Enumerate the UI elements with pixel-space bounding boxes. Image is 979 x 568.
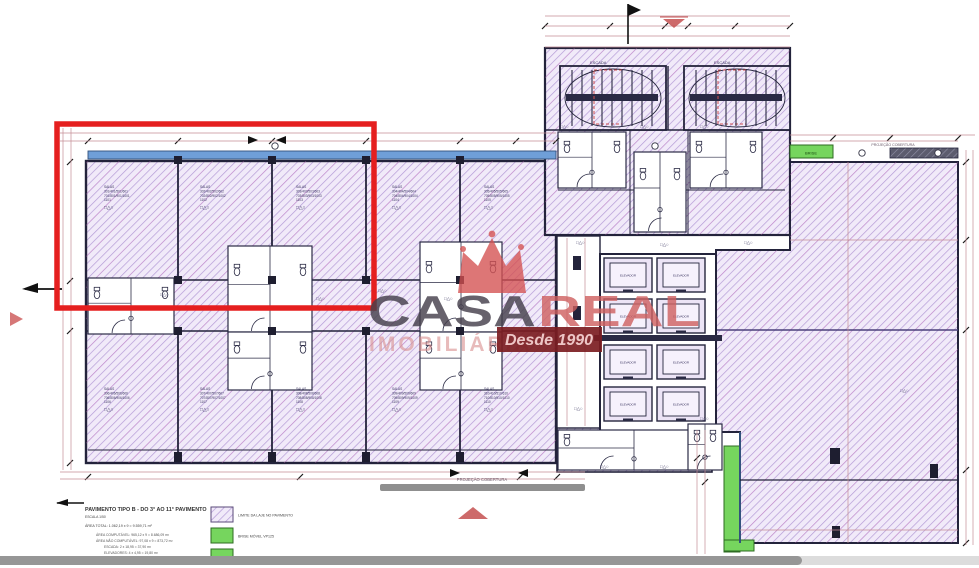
room-symbols: □△○ [104,407,114,413]
facility-symbols: □△○ [316,296,325,301]
room-label: 301/401/501/601 [104,189,128,193]
room-label: 708/808/908/1008 [296,396,322,400]
room-label: 302/402/502/602 [200,189,224,193]
room-label: 303/403/503/603 [296,189,320,193]
horizontal-scrollbar-thumb[interactable] [0,556,802,565]
room-label: 1108 [296,400,303,404]
room-label: 706/806/906/1006 [104,396,130,400]
room-label: 1106 [104,400,111,404]
stair-label: ESCADA [714,60,731,65]
stairwell-right [684,66,790,130]
room-label: 703/803/903/1003 [296,194,322,198]
watermark-badge-text: Desde 1990 [505,332,593,349]
facility-symbols: □△○ [700,124,709,129]
room-symbols: □△○ [104,205,114,211]
plan-scale: ESCALA 1/50 [85,515,106,519]
legend-swatch-brise-movel [211,528,233,543]
facility-symbols: □△○ [660,242,669,247]
blue-brise-strip [88,151,556,159]
room-label: 307/407/507/607 [200,391,224,395]
area-line: ELEVADORES: 4 x 4,95 = 19,80 m² [104,551,159,555]
facility-symbols: □△○ [744,240,753,245]
room-label: 1109 [392,400,399,404]
projection-label-bottom: PROJEÇÃO COBERTURA [457,477,508,482]
facility-symbols: □△○ [700,416,709,421]
area-line: ESCADA: 2 x 18,95 = 37,90 m² [104,545,152,549]
area-line: ÁREA COMPUTÁVEL: 965,12 x 9 = 8.686,09 m… [96,533,170,537]
elevator-label: ELEVADOR [673,361,690,365]
elevator-door [623,419,633,422]
room-label: 306/406/506/606 [104,391,128,395]
facility-symbols: □△○ [600,464,609,469]
room-label: 1103 [296,198,303,202]
facility-symbols: □△○ [560,124,569,129]
elevator-door [623,377,633,380]
projection-bar-bottom [380,484,585,491]
area-total: ÁREA TOTAL: 1.062,19 x 9 = 9.559,71 m² [85,524,153,528]
room-label: SALAS [104,387,114,391]
room-label: 709/809/909/1009 [392,396,418,400]
room-label: 705/805/905/1005 [484,194,510,198]
stairwell-left [560,66,666,130]
room-label: SALAS [484,387,494,391]
stair-label: ESCADA [590,60,607,65]
facility-symbols: □△○ [900,388,909,393]
area-line: ÁREA NÃO COMPUTÁVEL: 97,08 x 9 = 873,72 … [96,538,173,543]
room-label: 1102 [200,198,207,202]
elevator-label: ELEVADOR [673,403,690,407]
facility-symbols: □△○ [660,464,669,469]
brise-top-label: BRISE [805,151,817,156]
room-label: 1107 [200,400,207,404]
floor-plan-svg: ESCADA ESCADA ELEVADORELEVADORELEVADOREL… [0,0,979,568]
room-label: SALAS [104,185,114,189]
room-symbols: □△○ [296,407,306,413]
room-label: 310/410/510/610 [484,391,508,395]
facility-symbols: □△○ [160,292,169,297]
elevator-door [676,377,686,380]
room-symbols: □△○ [200,205,210,211]
room-label: 1105 [484,198,491,202]
elevator-label: ELEVADOR [620,361,637,365]
room-label: 304/404/504/604 [392,189,416,193]
room-label: SALAS [392,387,402,391]
room-label: SALAS [392,185,402,189]
elevator-label: ELEVADOR [620,274,637,278]
facility-symbols: □△○ [640,124,649,129]
floor-plan-viewer: ESCADA ESCADA ELEVADORELEVADORELEVADOREL… [0,0,979,568]
room-label: 1110 [484,400,491,404]
room-label: 305/405/505/605 [484,189,508,193]
room-label: 701/801/901/1001 [104,194,130,198]
room-symbols: □△○ [200,407,210,413]
room-label: 309/409/509/609 [392,391,416,395]
room-label: 1104 [392,198,399,202]
elevator-label: ELEVADOR [673,274,690,278]
room-label: SALAS [484,185,494,189]
room-label: 710/810/910/1010 [484,396,510,400]
legend-swatch-laje [211,507,233,522]
room-symbols: □△○ [484,205,494,211]
projection-label-top: PROJEÇÃO COBERTURA [871,142,915,147]
elevator-door [676,419,686,422]
facility-symbols: □△○ [576,240,585,245]
room-label: 702/802/902/1002 [200,194,226,198]
legend-label: BRISE MÓVEL VP125 [238,534,274,539]
room-symbols: □△○ [392,205,402,211]
room-symbols: □△○ [392,407,402,413]
room-label: 1101 [104,198,111,202]
room-label: 704/804/904/1004 [392,194,418,198]
room-symbols: □△○ [296,205,306,211]
room-label: SALAS [296,185,306,189]
room-label: 707/807/907/1007 [200,396,226,400]
room-label: SALAS [296,387,306,391]
plan-title: PAVIMENTO TIPO B - DO 3° AO 11° PAVIMENT… [85,507,207,513]
green-brise-vertical [724,446,740,552]
elevator-label: ELEVADOR [620,403,637,407]
room-label: SALAS [200,387,210,391]
room-label: SALAS [200,185,210,189]
room-label: 308/408/508/608 [296,391,320,395]
legend-label: LIMITE DA LAJE NO PAVIMENTO [238,514,293,518]
facility-symbols: □△○ [574,406,583,411]
dark-facade-strip [890,148,958,158]
room-symbols: □△○ [484,407,494,413]
